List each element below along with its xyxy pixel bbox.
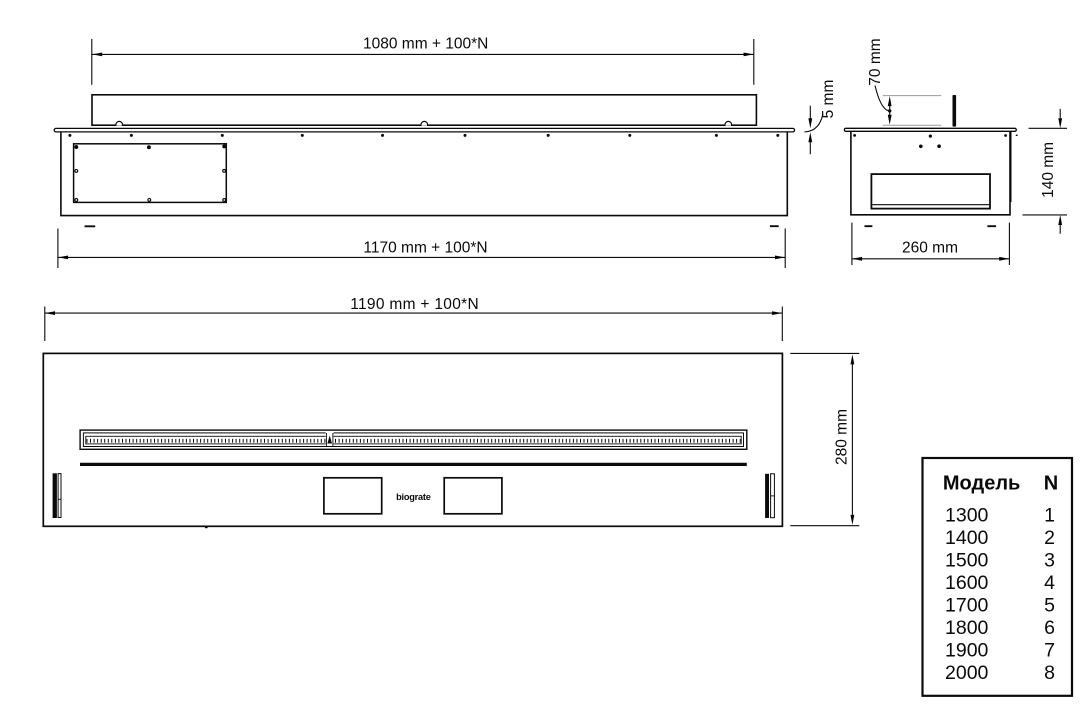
svg-text:5: 5 <box>1044 595 1055 617</box>
svg-text:Модель: Модель <box>943 473 1020 495</box>
svg-text:1500: 1500 <box>945 550 989 572</box>
svg-text:1400: 1400 <box>945 527 989 549</box>
svg-text:4: 4 <box>1044 572 1055 594</box>
svg-text:1700: 1700 <box>945 595 989 617</box>
svg-text:260 mm: 260 mm <box>902 240 958 257</box>
svg-text:1170 mm + 100*N: 1170 mm + 100*N <box>363 239 487 256</box>
svg-text:N: N <box>1044 473 1058 495</box>
svg-text:70 mm: 70 mm <box>867 38 884 85</box>
svg-text:1080 mm + 100*N: 1080 mm + 100*N <box>363 36 488 53</box>
svg-text:7: 7 <box>1044 640 1055 662</box>
svg-text:1800: 1800 <box>945 617 989 639</box>
svg-text:140 mm: 140 mm <box>1040 142 1057 198</box>
svg-text:1: 1 <box>1044 505 1055 527</box>
svg-text:1190 mm + 100*N: 1190 mm + 100*N <box>350 296 479 313</box>
svg-text:2000: 2000 <box>945 662 989 684</box>
svg-text:6: 6 <box>1044 617 1055 639</box>
svg-text:5 mm: 5 mm <box>820 80 837 119</box>
svg-text:1300: 1300 <box>945 505 989 527</box>
svg-text:2: 2 <box>1044 527 1055 549</box>
svg-text:1900: 1900 <box>945 640 989 662</box>
svg-text:biograte: biograte <box>396 492 431 502</box>
svg-text:3: 3 <box>1044 550 1055 572</box>
svg-text:8: 8 <box>1044 662 1055 684</box>
svg-text:280 mm: 280 mm <box>833 409 850 465</box>
svg-text:1600: 1600 <box>945 572 989 594</box>
